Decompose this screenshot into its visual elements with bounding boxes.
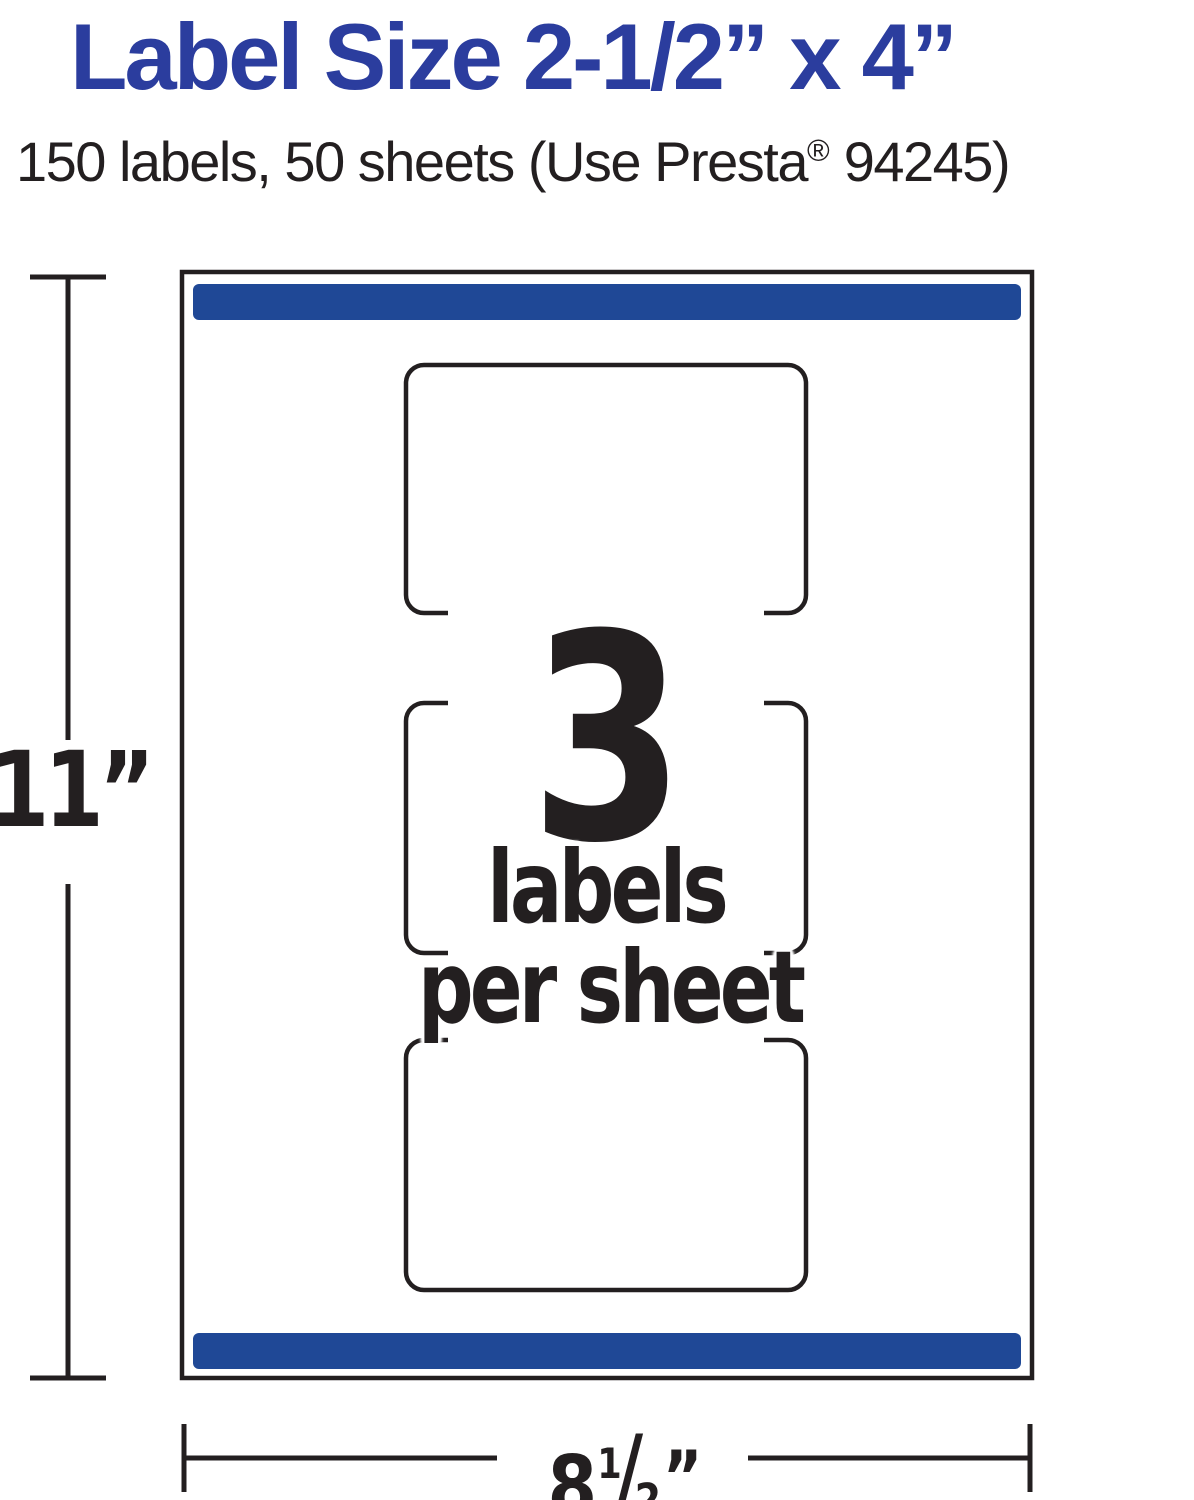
height-dimension-label: 11”: [0, 738, 150, 842]
sheet-top-blue-bar: [193, 284, 1021, 320]
width-inch-mark: ”: [663, 1435, 703, 1500]
label-size-figure: Label Size 2-1/2” x 4” 150 labels, 50 sh…: [0, 0, 1194, 1500]
labels-word: labels: [487, 838, 725, 938]
width-fraction-denominator: 2: [635, 1474, 661, 1500]
per-sheet-words: per sheet: [418, 938, 802, 1038]
sheet-bottom-blue-bar: [193, 1333, 1021, 1369]
width-dimension-label: 81/2”: [548, 1422, 703, 1500]
width-whole-number: 8: [548, 1438, 596, 1500]
